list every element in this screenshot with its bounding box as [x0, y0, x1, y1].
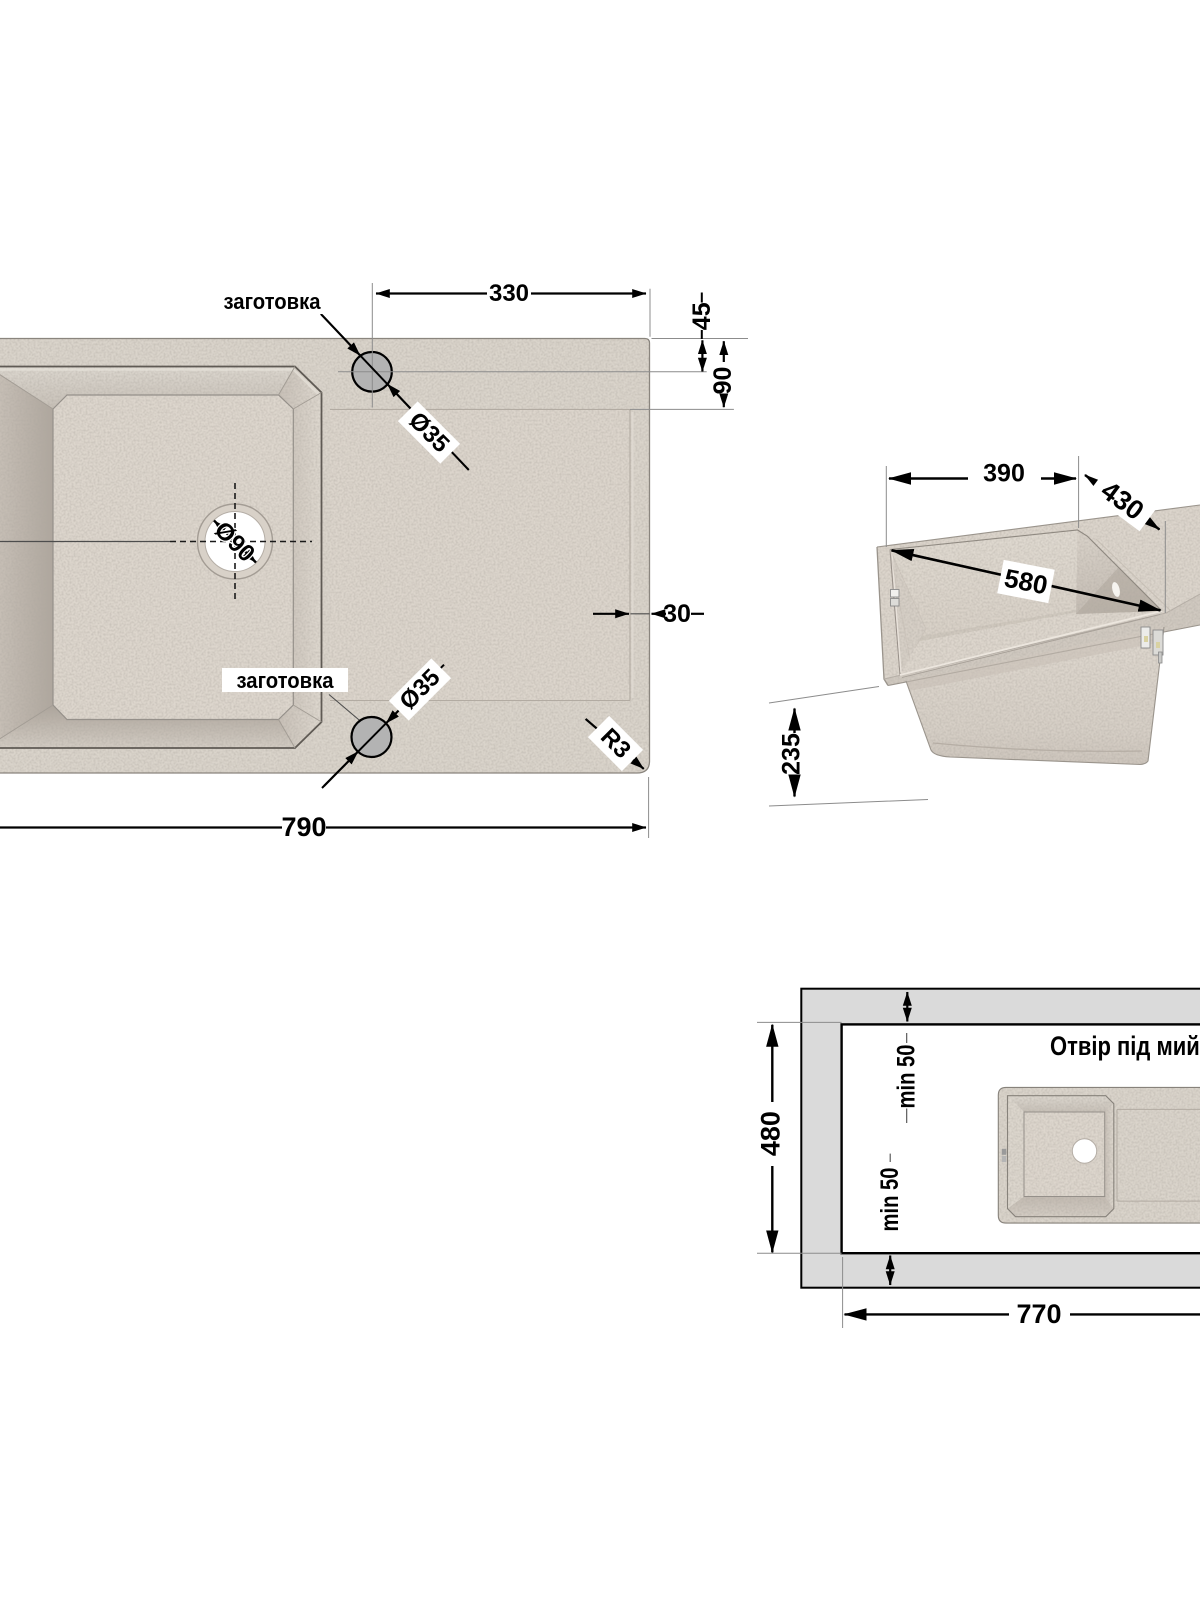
svg-text:790: 790 [281, 812, 326, 842]
svg-text:770: 770 [1016, 1299, 1061, 1329]
svg-text:Отвір під мийку: Отвір під мийку [1050, 1031, 1200, 1061]
svg-text:480: 480 [756, 1111, 786, 1156]
svg-text:330: 330 [489, 280, 529, 307]
svg-text:90: 90 [709, 367, 737, 395]
svg-text:min 50: min 50 [876, 1168, 904, 1232]
svg-text:min 50: min 50 [893, 1045, 921, 1109]
svg-text:30: 30 [663, 600, 691, 628]
svg-text:235: 235 [778, 733, 806, 775]
svg-text:390: 390 [983, 460, 1025, 488]
svg-text:45: 45 [688, 302, 716, 330]
svg-text:заготовка: заготовка [224, 289, 322, 314]
svg-text:заготовка: заготовка [237, 668, 335, 693]
